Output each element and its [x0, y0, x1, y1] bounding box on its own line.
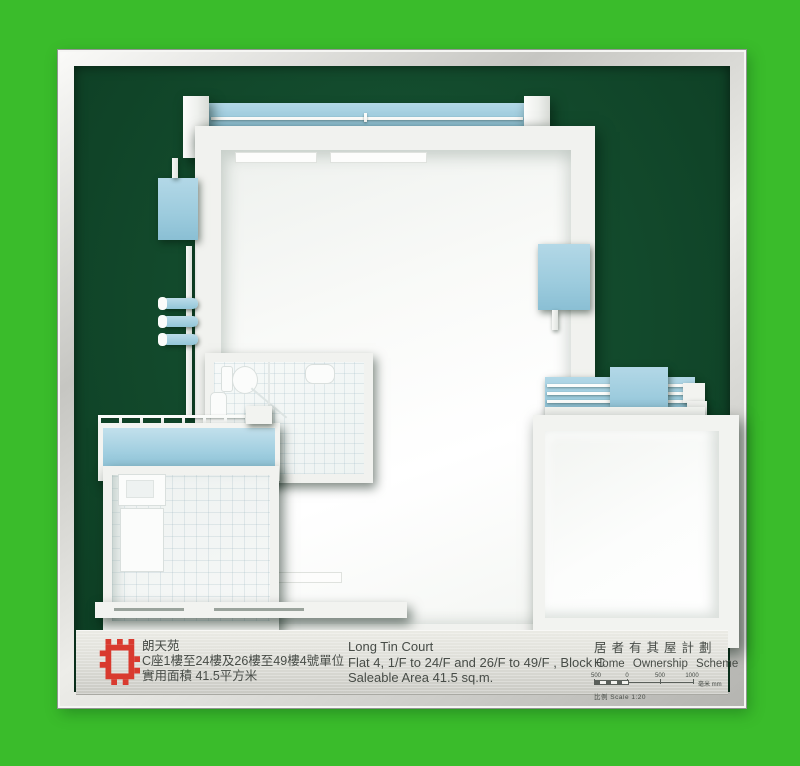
scale-tick-label: 500	[591, 673, 601, 679]
left-standpipe	[186, 246, 192, 418]
scale-bar-tick	[693, 679, 694, 684]
front-balcony-railing	[211, 117, 523, 120]
project-name-zh: 朗天苑	[142, 639, 344, 654]
railing-divider	[364, 113, 367, 122]
scale-ratio-text: 比例 Scale 1:20	[594, 691, 724, 701]
location-en: Flat 4, 1/F to 24/F and 26/F to 49/F , B…	[348, 655, 605, 671]
platform-ledge-upper	[683, 383, 705, 403]
scheme-title-zh: 居者有其屋計劃	[594, 637, 724, 656]
service-pipe-2	[162, 316, 198, 327]
plate-text-english: Long Tin Court Flat 4, 1/F to 24/F and 2…	[348, 639, 605, 686]
plate-text-chinese: 朗天苑 C座1樓至24樓及26樓至49樓4號單位 實用面積 41.5平方米	[142, 639, 344, 684]
ac-box-right	[538, 244, 590, 310]
service-pipe-3	[162, 334, 198, 345]
balcony-threshold-box	[246, 406, 272, 424]
pipe-cap-1	[158, 297, 167, 310]
floor-threshold	[275, 572, 342, 583]
wash-basin	[305, 364, 335, 384]
slab-slot-2	[214, 608, 304, 611]
project-name-en: Long Tin Court	[348, 639, 605, 655]
plate-scheme-block: 居者有其屋計劃 Home Ownership Scheme 500 0 500 …	[594, 637, 724, 701]
scheme-title-en: Home Ownership Scheme	[594, 658, 724, 670]
label-plate: 朗天苑 C座1樓至24樓及26樓至49樓4號單位 實用面積 41.5平方米 Lo…	[76, 630, 728, 694]
window-sill-left	[235, 152, 317, 163]
scale-unit: 毫米 mm	[698, 679, 722, 688]
bedroom	[533, 415, 739, 648]
kitchen-cabinet	[120, 508, 164, 572]
location-zh: C座1樓至24樓及26樓至49樓4號單位	[142, 654, 344, 669]
area-zh: 實用面積 41.5平方米	[142, 669, 344, 684]
pipe-stub-top	[172, 158, 178, 178]
ac-right-pipe	[552, 310, 558, 330]
housing-authority-logo	[94, 639, 140, 685]
scale-tick-label: 1000	[685, 673, 698, 679]
kitchen-sink	[126, 480, 154, 498]
scale-bar-tick	[660, 679, 661, 684]
ac-box-upper-left	[158, 178, 198, 240]
pipe-cap-2	[158, 315, 167, 328]
scale-bar: 500 0 500 1000 毫米 mm	[594, 673, 706, 689]
service-pipe-1	[162, 298, 198, 309]
area-en: Saleable Area 41.5 sq.m.	[348, 670, 605, 686]
slab-slot-1	[114, 608, 184, 611]
window-sill-right	[330, 152, 427, 163]
scale-bar-checks	[594, 680, 629, 685]
pipe-cap-3	[158, 333, 167, 346]
photo-background: 朗天苑 C座1樓至24樓及26樓至49樓4號單位 實用面積 41.5平方米 Lo…	[0, 0, 800, 766]
